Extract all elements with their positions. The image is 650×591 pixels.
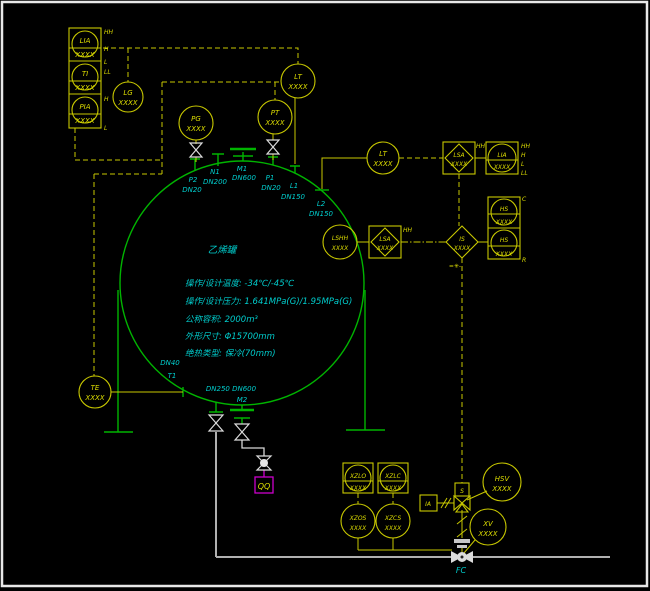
instrument-xzos[interactable]: XZOS XXXX bbox=[341, 504, 375, 538]
svg-text:XXXX: XXXX bbox=[287, 83, 307, 91]
svg-text:M1: M1 bbox=[237, 165, 248, 173]
svg-text:DN20: DN20 bbox=[182, 186, 202, 194]
alarm-marker: L bbox=[521, 161, 524, 168]
tank-spec-insulation: 绝热类型: 保冷(70mm) bbox=[185, 348, 276, 359]
valve-m2-drain[interactable] bbox=[235, 424, 249, 440]
alarm-marker: H bbox=[104, 46, 109, 53]
svg-text:DN20: DN20 bbox=[261, 184, 281, 192]
svg-text:XV: XV bbox=[482, 520, 494, 528]
svg-text:LSHH: LSHH bbox=[332, 235, 349, 242]
instrument-number: XXXX bbox=[74, 117, 94, 125]
alarm-marker: HH bbox=[476, 143, 486, 150]
actuator-icon bbox=[454, 539, 470, 543]
svg-text:HS: HS bbox=[500, 206, 509, 213]
drain-collector-box[interactable]: QQ bbox=[255, 477, 273, 493]
svg-text:XXXX: XXXX bbox=[349, 485, 367, 492]
alarm-marker: H bbox=[104, 96, 109, 103]
tank-spec-dimension: 外形尺寸: Φ15700mm bbox=[185, 331, 275, 342]
svg-text:XXXX: XXXX bbox=[495, 251, 513, 258]
alarm-marker: LL bbox=[521, 170, 528, 177]
svg-text:XXXX: XXXX bbox=[264, 119, 284, 127]
pid-drawing-window: LIA XXXX TI XXXX PIA XXXX HH H L LL H L … bbox=[0, 0, 650, 591]
drain-pipe bbox=[242, 440, 264, 456]
instrument-lia-right[interactable]: LIA XXXX HH H L LL bbox=[486, 142, 531, 177]
air-supply-label: IA bbox=[425, 501, 431, 508]
instrument-xzlo[interactable]: XZLO XXXX bbox=[343, 463, 373, 493]
valve-drain-globe[interactable] bbox=[257, 456, 271, 470]
alarm-marker: LL bbox=[104, 69, 111, 76]
svg-text:LG: LG bbox=[123, 89, 133, 97]
svg-text:IS: IS bbox=[459, 236, 465, 243]
instrument-lt-top[interactable]: LT XXXX bbox=[281, 64, 315, 98]
instrument-tag: TI bbox=[82, 70, 88, 78]
tank-name: 乙烯罐 bbox=[208, 244, 238, 256]
instrument-air-supply[interactable]: IA bbox=[420, 495, 437, 511]
alarm-marker: HH bbox=[403, 227, 413, 234]
svg-text:XXXX: XXXX bbox=[117, 99, 137, 107]
svg-text:XXXX: XXXX bbox=[450, 161, 468, 168]
svg-text:XXXX: XXXX bbox=[331, 245, 349, 252]
instrument-tag: PIA bbox=[79, 103, 90, 111]
solenoid-label: S bbox=[460, 488, 464, 495]
svg-text:L1: L1 bbox=[290, 182, 298, 190]
drawing-border bbox=[2, 2, 647, 586]
svg-text:TE: TE bbox=[91, 384, 100, 392]
svg-text:XZCS: XZCS bbox=[384, 515, 402, 522]
instrument-is[interactable]: IS XXXX =✳- bbox=[446, 226, 478, 270]
svg-text:P2: P2 bbox=[189, 176, 198, 184]
drain-box-label: QQ bbox=[258, 482, 271, 491]
instrument-stack-lia-ti-pia[interactable]: LIA XXXX TI XXXX PIA XXXX HH H L LL H L bbox=[69, 28, 114, 132]
valve-bottom-outlet[interactable] bbox=[209, 415, 223, 431]
valve-pg-root[interactable] bbox=[190, 143, 202, 157]
nozzle-m1-stem bbox=[233, 152, 253, 161]
svg-text:XXXX: XXXX bbox=[453, 245, 471, 252]
svg-text:XXXX: XXXX bbox=[384, 485, 402, 492]
instrument-lt-right[interactable]: LT XXXX bbox=[367, 142, 399, 174]
alarm-marker: L bbox=[104, 59, 107, 66]
interlock-reset-icon: =✳- bbox=[449, 263, 461, 270]
alarm-marker: HH bbox=[104, 29, 114, 36]
svg-text:DN200: DN200 bbox=[203, 178, 228, 186]
svg-text:T1: T1 bbox=[168, 372, 177, 380]
tank-spec-temperature: 操作/设计温度: -34℃/-45℃ bbox=[185, 278, 295, 289]
svg-text:XZLC: XZLC bbox=[384, 473, 402, 480]
instrument-lg[interactable]: LG XXXX bbox=[113, 82, 143, 112]
svg-text:M2: M2 bbox=[237, 396, 248, 404]
instrument-number: XXXX bbox=[74, 51, 94, 59]
instrument-lshh[interactable]: LSHH XXXX bbox=[323, 225, 357, 259]
svg-text:XXXX: XXXX bbox=[376, 245, 394, 252]
svg-text:LT: LT bbox=[294, 73, 302, 81]
svg-text:PG: PG bbox=[191, 115, 201, 123]
svg-text:DN250 DN600: DN250 DN600 bbox=[206, 385, 257, 393]
tank-spec-pressure: 操作/设计压力: 1.641MPa(G)/1.95MPa(G) bbox=[185, 296, 352, 307]
svg-text:XXXX: XXXX bbox=[84, 394, 104, 402]
svg-text:DN150: DN150 bbox=[309, 210, 334, 218]
svg-text:DN150: DN150 bbox=[281, 193, 306, 201]
svg-text:XXXX: XXXX bbox=[185, 125, 205, 133]
svg-text:HS: HS bbox=[500, 237, 509, 244]
svg-text:DN40: DN40 bbox=[160, 359, 180, 367]
tank-spec-volume: 公称容积: 2000m³ bbox=[185, 314, 258, 325]
main-bottom-pipe bbox=[216, 432, 610, 557]
nozzle-m2-stem bbox=[234, 405, 250, 424]
alarm-marker: L bbox=[104, 125, 107, 132]
instrument-xzlc[interactable]: XZLC XXXX bbox=[378, 463, 408, 493]
svg-text:DN600: DN600 bbox=[232, 174, 257, 182]
svg-text:XXXX: XXXX bbox=[495, 219, 513, 226]
instrument-hsv[interactable]: HSV XXXX bbox=[483, 463, 521, 501]
instrument-te[interactable]: TE XXXX bbox=[79, 376, 111, 408]
instrument-pg[interactable]: PG XXXX bbox=[179, 106, 213, 140]
instrument-xzcs[interactable]: XZCS XXXX bbox=[376, 504, 410, 538]
svg-text:N1: N1 bbox=[210, 168, 220, 176]
svg-text:XXXX: XXXX bbox=[384, 525, 402, 532]
valve-pt-root[interactable] bbox=[267, 140, 279, 154]
svg-text:XXXX: XXXX bbox=[372, 160, 392, 168]
pid-canvas[interactable]: LIA XXXX TI XXXX PIA XXXX HH H L LL H L … bbox=[0, 0, 650, 591]
svg-text:P1: P1 bbox=[266, 174, 275, 182]
svg-text:LSA: LSA bbox=[379, 236, 390, 243]
process-lines bbox=[216, 432, 610, 557]
alarm-marker: HH bbox=[521, 143, 531, 150]
instrument-xv[interactable]: XV XXXX bbox=[470, 509, 506, 545]
instrument-number: XXXX bbox=[74, 84, 94, 92]
mode-marker: C bbox=[522, 196, 527, 203]
svg-text:XZOS: XZOS bbox=[349, 515, 367, 522]
instrument-pt[interactable]: PT XXXX bbox=[258, 100, 292, 134]
svg-text:XXXX: XXXX bbox=[493, 164, 511, 171]
svg-text:LIA: LIA bbox=[497, 152, 506, 159]
svg-text:XXXX: XXXX bbox=[349, 525, 367, 532]
fail-mode-label: FC bbox=[456, 566, 467, 575]
instrument-tag: LIA bbox=[80, 37, 91, 45]
svg-text:HSV: HSV bbox=[495, 475, 511, 483]
svg-text:LSA: LSA bbox=[453, 152, 464, 159]
svg-text:XXXX: XXXX bbox=[477, 530, 497, 538]
svg-text:LT: LT bbox=[379, 150, 387, 158]
solenoid-pilot-valve[interactable]: S bbox=[454, 483, 470, 512]
svg-text:XZLO: XZLO bbox=[349, 473, 366, 480]
svg-text:PT: PT bbox=[271, 109, 280, 117]
tank-annotation: 乙烯罐 操作/设计温度: -34℃/-45℃ 操作/设计压力: 1.641MPa… bbox=[185, 244, 352, 359]
actuator-icon bbox=[457, 545, 467, 548]
svg-text:XXXX: XXXX bbox=[491, 485, 511, 493]
mode-marker: R bbox=[522, 257, 526, 264]
shutdown-valve-fc[interactable]: FC bbox=[451, 539, 473, 575]
svg-text:L2: L2 bbox=[317, 200, 326, 208]
instrument-hs-stack[interactable]: HS XXXX HS XXXX C R bbox=[488, 196, 527, 264]
alarm-marker: H bbox=[521, 152, 526, 159]
